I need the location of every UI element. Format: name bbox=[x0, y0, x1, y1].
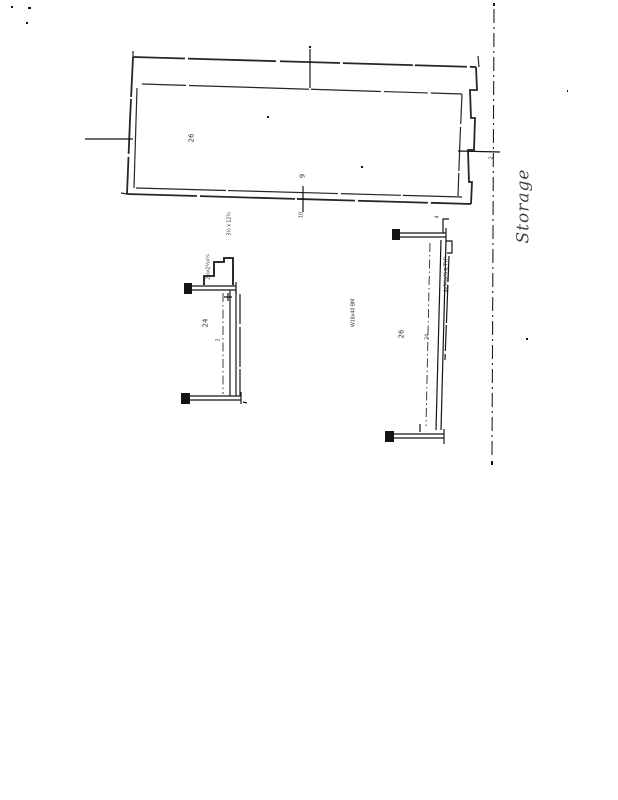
plate-note: 4x5½x¼ ℄ TYP bbox=[445, 257, 450, 292]
detail-right-label: 26 bbox=[399, 330, 406, 339]
plan-right-tick-note: 2 bbox=[490, 157, 495, 160]
scanned-drawing-sheet: 26 9 10 2 3½ x 12½ 2½x2½x¼ W18x40 BM 24 … bbox=[0, 0, 618, 800]
plan-outline bbox=[121, 51, 479, 204]
plan-room-label: 26 bbox=[189, 134, 196, 143]
bottom-end-block bbox=[385, 431, 394, 442]
scale-note: 3½ x 12½ bbox=[228, 212, 233, 236]
top-end-block bbox=[184, 283, 192, 294]
plan-bottom-tick-note: 10 bbox=[300, 212, 305, 218]
detail-right-mark: 24 bbox=[426, 334, 431, 340]
datum-line bbox=[491, 3, 495, 465]
beam-size-note: W18x40 BM bbox=[352, 299, 357, 327]
detail-left-label: 24 bbox=[203, 319, 210, 328]
bottom-end-block bbox=[181, 393, 190, 404]
handwritten-storage-note: Storage bbox=[516, 169, 533, 244]
beam-detail-left bbox=[181, 258, 247, 404]
right-tick bbox=[458, 151, 500, 152]
clip-size-note: 2½x2½x¼ bbox=[207, 254, 212, 279]
plan-ticks bbox=[85, 46, 500, 212]
plan-dim-label: 9 bbox=[300, 174, 307, 178]
beam-detail-right bbox=[385, 219, 452, 444]
detail-left-mark: 2 bbox=[217, 339, 222, 342]
top-end-block bbox=[392, 229, 400, 240]
detail-right-top-note: 4 bbox=[436, 216, 441, 219]
scan-specks bbox=[11, 6, 568, 340]
